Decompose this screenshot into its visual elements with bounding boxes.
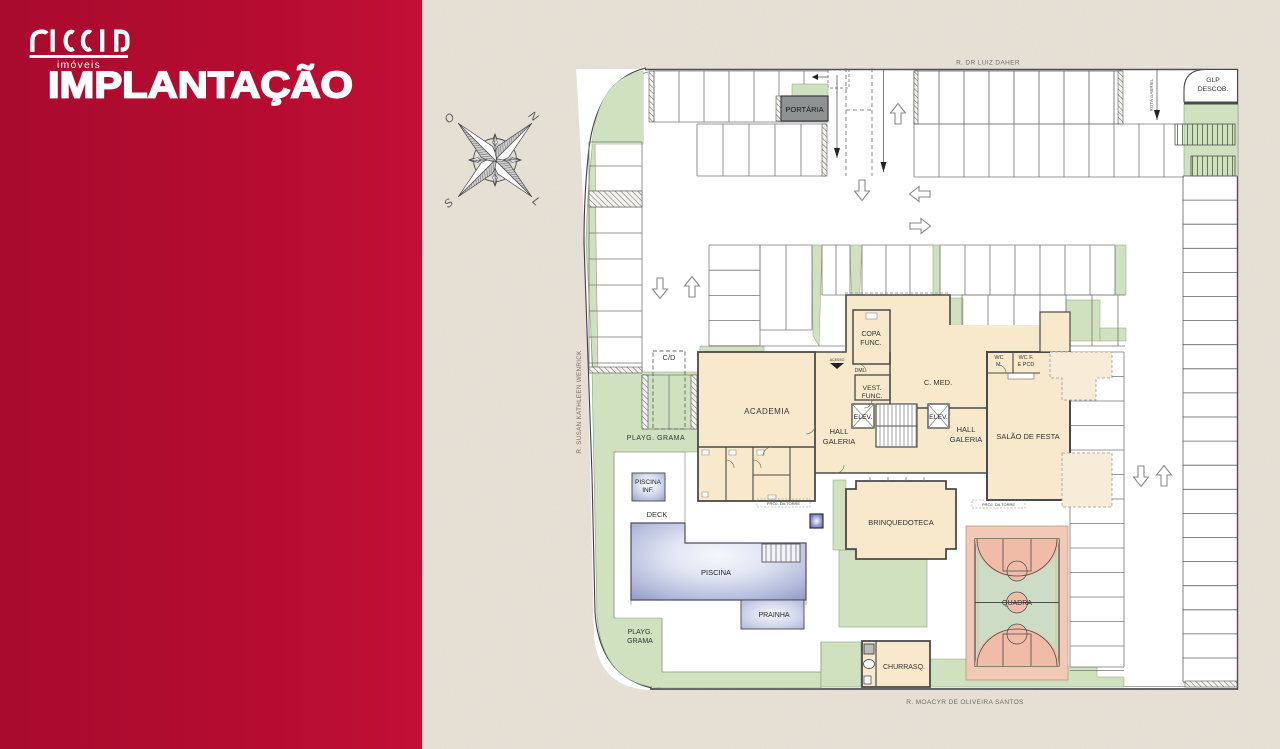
svg-text:PROJ. DA TORRE: PROJ. DA TORRE [982, 502, 1016, 507]
svg-text:PRAINHA: PRAINHA [758, 612, 789, 619]
svg-text:ELEV.: ELEV. [854, 414, 873, 421]
svg-text:R. DR LUIZ DAHER: R. DR LUIZ DAHER [956, 60, 1020, 67]
svg-text:GALERIA: GALERIA [823, 437, 856, 446]
svg-text:PORTÁRIA: PORTÁRIA [785, 105, 823, 114]
svg-text:DML: DML [855, 368, 866, 374]
svg-text:M.: M. [996, 362, 1003, 368]
svg-text:ACESSO: ACESSO [830, 358, 845, 362]
svg-text:PLAYG.: PLAYG. [628, 629, 653, 636]
svg-text:IMPLANTAÇÃO: IMPLANTAÇÃO [48, 64, 353, 106]
svg-text:GLP: GLP [1206, 77, 1220, 84]
svg-text:BRINQUEDOTECA: BRINQUEDOTECA [868, 518, 933, 527]
svg-text:R. MOACYR DE OLIVEIRA SANTOS: R. MOACYR DE OLIVEIRA SANTOS [906, 699, 1024, 706]
svg-text:GALERIA: GALERIA [950, 435, 983, 444]
svg-text:PLAYG. GRAMA: PLAYG. GRAMA [627, 435, 685, 442]
svg-text:SALÃO DE FESTA: SALÃO DE FESTA [996, 432, 1059, 441]
svg-text:C. MED.: C. MED. [924, 378, 952, 387]
svg-text:E PCD: E PCD [1018, 362, 1035, 368]
svg-text:R. SUSAN KATHLEEN WENRICK: R. SUSAN KATHLEEN WENRICK [576, 350, 583, 454]
svg-text:QUADRA: QUADRA [1002, 600, 1032, 607]
svg-text:PISCINA: PISCINA [635, 479, 662, 486]
svg-text:COPA: COPA [861, 331, 881, 338]
svg-text:PISCINA: PISCINA [701, 568, 731, 577]
svg-text:C/D: C/D [663, 353, 677, 362]
svg-text:GRAMA: GRAMA [627, 638, 653, 645]
svg-text:ACADEMIA: ACADEMIA [744, 407, 790, 416]
svg-text:CHURRASQ.: CHURRASQ. [883, 664, 925, 671]
svg-text:PROJ. DA TORRE: PROJ. DA TORRE [767, 501, 801, 506]
svg-text:WC F.: WC F. [1019, 355, 1034, 361]
svg-text:WC: WC [994, 355, 1003, 361]
svg-text:DECK: DECK [647, 510, 668, 519]
svg-text:HALL: HALL [957, 425, 976, 434]
svg-text:INF.: INF. [642, 487, 654, 494]
svg-text:ROTA GABRIEL: ROTA GABRIEL [1149, 78, 1154, 111]
svg-text:FUNC.: FUNC. [862, 393, 883, 400]
svg-text:HALL: HALL [830, 427, 849, 436]
svg-text:FUNC.: FUNC. [860, 340, 881, 347]
svg-text:VEST.: VEST. [863, 385, 882, 392]
svg-text:ELEV.: ELEV. [929, 414, 948, 421]
svg-text:DESCOB.: DESCOB. [1198, 86, 1229, 93]
